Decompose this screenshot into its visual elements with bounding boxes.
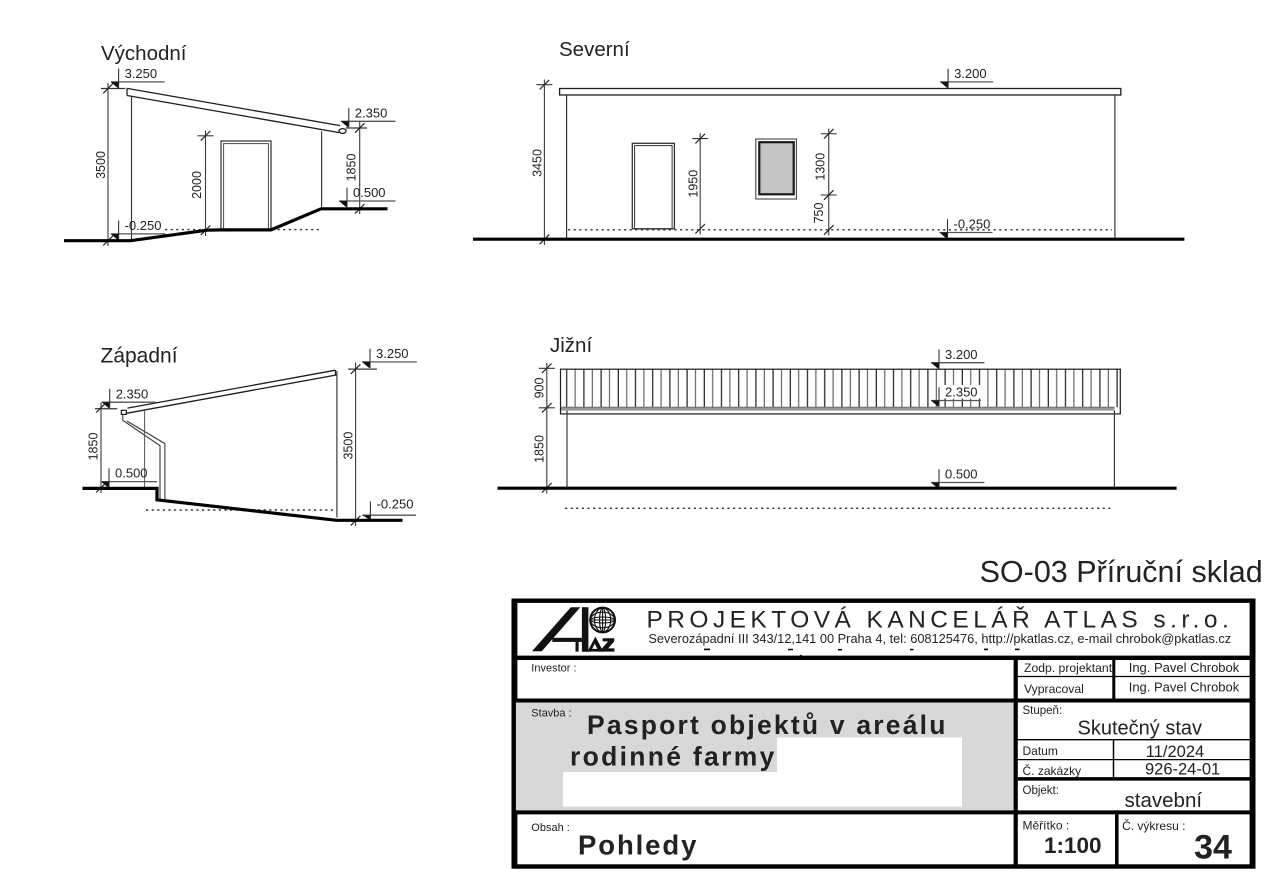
svg-text:Č. výkresu :: Č. výkresu :	[1122, 818, 1185, 833]
svg-text:3.200: 3.200	[954, 66, 987, 81]
svg-text:11/2024: 11/2024	[1146, 743, 1204, 761]
svg-text:Severozápadní III 343/12,141 0: Severozápadní III 343/12,141 00 Praha 4,…	[648, 631, 1231, 646]
svg-text:Zodp. projektant: Zodp. projektant	[1024, 661, 1113, 675]
svg-text:SO-03 Příruční sklad: SO-03 Příruční sklad	[980, 555, 1263, 589]
svg-text:Obsah :: Obsah :	[531, 822, 570, 834]
svg-text:Stupeň:: Stupeň:	[1023, 705, 1063, 717]
svg-text:Severní: Severní	[559, 38, 630, 61]
svg-text:PROJEKTOVÁ KANCELÁŘ ATLAS s.r: PROJEKTOVÁ KANCELÁŘ ATLAS s.r.o.	[647, 606, 1234, 633]
svg-text:900: 900	[533, 378, 547, 399]
svg-text:rodinné farmy: rodinné farmy	[570, 742, 777, 772]
svg-text:1850: 1850	[87, 433, 101, 461]
svg-text:750: 750	[812, 203, 826, 224]
svg-text:Východní: Východní	[101, 42, 187, 65]
svg-text:-0.250: -0.250	[377, 496, 414, 511]
svg-text:stavební: stavební	[1125, 789, 1203, 812]
svg-text:926-24-01: 926-24-01	[1145, 761, 1220, 779]
svg-text:Č. zakázky: Č. zakázky	[1023, 763, 1082, 778]
svg-text:Pasport objektů v areálu: Pasport objektů v areálu	[587, 710, 948, 740]
svg-text:0.500: 0.500	[353, 185, 386, 200]
svg-text:Ing. Pavel Chrobok: Ing. Pavel Chrobok	[1129, 660, 1240, 675]
svg-text:0.500: 0.500	[945, 467, 978, 482]
svg-text:2.350: 2.350	[355, 105, 388, 120]
svg-text:1:100: 1:100	[1044, 833, 1102, 858]
svg-text:3500: 3500	[94, 151, 108, 179]
svg-text:Stavba :: Stavba :	[531, 708, 571, 720]
svg-text:Datum: Datum	[1023, 744, 1058, 758]
svg-text:3.250: 3.250	[376, 346, 409, 361]
svg-text:1850: 1850	[345, 154, 359, 182]
svg-text:1950: 1950	[687, 170, 701, 198]
svg-text:Západní: Západní	[101, 345, 178, 368]
svg-text:0.500: 0.500	[115, 466, 148, 481]
svg-text:3.250: 3.250	[125, 66, 158, 81]
svg-text:3500: 3500	[342, 432, 356, 460]
svg-text:2000: 2000	[190, 171, 204, 199]
svg-text:Objekt:: Objekt:	[1023, 785, 1059, 797]
svg-text:2.350: 2.350	[116, 386, 149, 401]
svg-text:1850: 1850	[533, 435, 547, 463]
svg-text:Ing. Pavel Chrobok: Ing. Pavel Chrobok	[1129, 679, 1240, 694]
svg-text:-0.250: -0.250	[125, 218, 162, 233]
svg-text:Pohledy: Pohledy	[578, 830, 698, 861]
svg-text:1300: 1300	[814, 153, 828, 181]
svg-text:Vypracoval: Vypracoval	[1024, 682, 1084, 696]
svg-text:Investor :: Investor :	[531, 662, 576, 674]
svg-text:Skutečný stav: Skutečný stav	[1078, 718, 1203, 740]
svg-text:2.350: 2.350	[945, 385, 978, 400]
svg-text:Měřítko :: Měřítko :	[1023, 818, 1070, 832]
svg-text:3.200: 3.200	[945, 347, 978, 362]
svg-text:3450: 3450	[531, 149, 545, 177]
svg-text:34: 34	[1194, 829, 1232, 867]
svg-text:Jižní: Jižní	[550, 334, 592, 357]
